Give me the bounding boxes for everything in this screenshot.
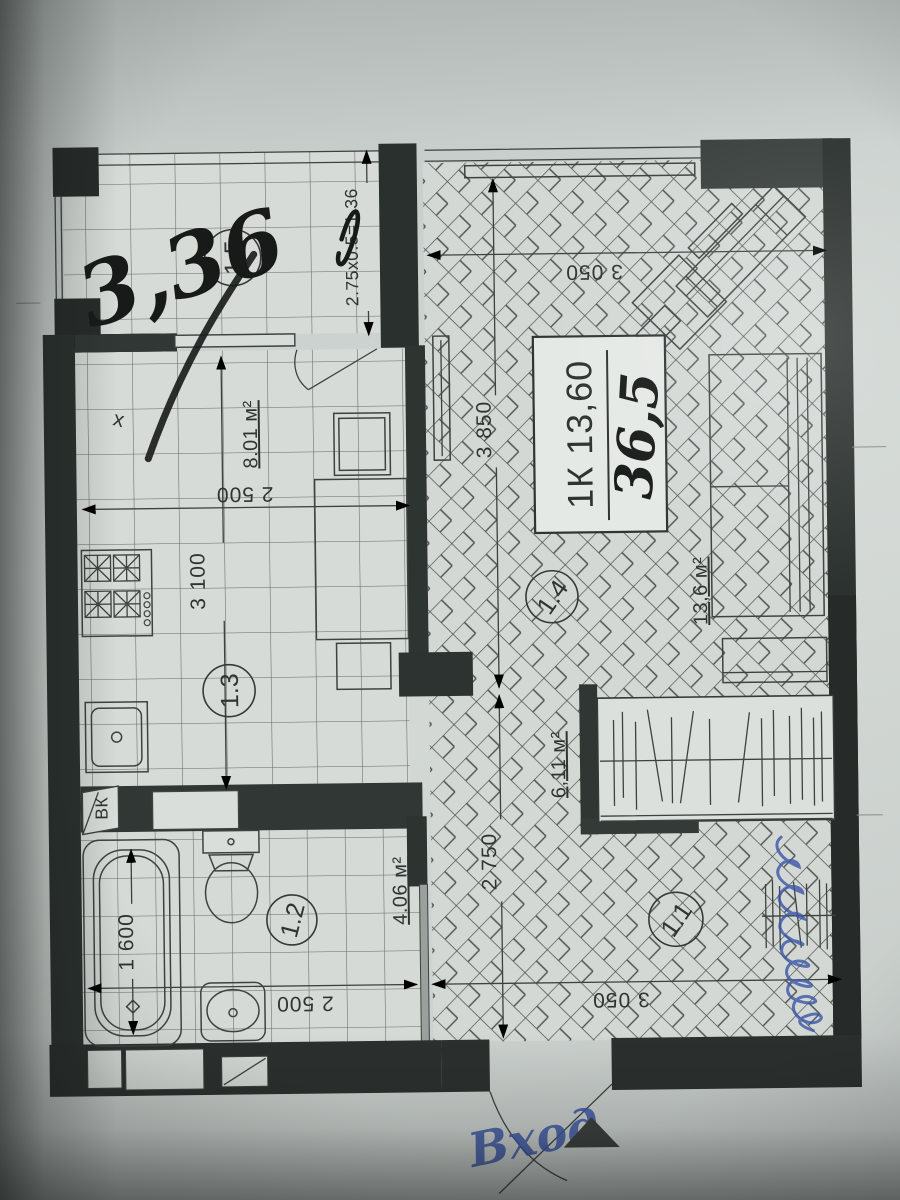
unit-label: 1К 13,60 <box>558 360 601 510</box>
dim-living-width: 3 050 <box>565 260 623 284</box>
wall-corner-tr <box>700 138 833 189</box>
area-living: 13,6 м² <box>689 557 712 626</box>
water-riser-box: ВК <box>82 786 119 834</box>
bottom-wall-niche-1 <box>87 1050 121 1088</box>
wall-pier-top <box>378 143 418 347</box>
balcony-side-window <box>55 197 62 301</box>
closet <box>597 695 834 822</box>
dim-kitchen-width: 2 500 <box>216 482 274 506</box>
bottom-wall-niche-2 <box>125 1049 203 1090</box>
unit-label-box: 1К 13,60 36,5 <box>533 335 674 533</box>
wall-closet-left <box>579 684 599 834</box>
wall-bath-kitchen <box>80 782 423 832</box>
floor-plan-photo: ВК 2.75x0.5=1.36 3 050 3 850 2 500 <box>0 0 900 1200</box>
water-riser-label: ВК <box>91 796 111 819</box>
dim-hall-width: 3 050 <box>592 988 650 1012</box>
wall-bottom-right <box>611 1035 862 1090</box>
dim-hall-depth: 2 750 <box>478 833 502 891</box>
wall-bath-hall-thin <box>419 884 429 1042</box>
area-bath: 4.06 м² <box>389 856 412 925</box>
dim-bath-width: 2 500 <box>276 991 334 1015</box>
floor-plan-svg: ВК 2.75x0.5=1.36 3 050 3 850 2 500 <box>0 0 900 1200</box>
wall-duct-inset <box>152 791 238 830</box>
dim-living-depth: 3 850 <box>473 401 497 459</box>
area-kitchen: 8.01 м² <box>240 400 263 469</box>
dim-kitchen-depth: 3 100 <box>186 552 210 610</box>
wall-corner-tl <box>52 147 99 197</box>
dim-tub-length: 1 600 <box>115 913 139 971</box>
area-hall: 6,11 м² <box>548 731 571 798</box>
living-hall-parquet <box>423 158 834 1042</box>
wall-kitchen-se-block <box>399 652 474 697</box>
room-number-kitchen: 1.3 <box>216 673 244 708</box>
handwritten-total-area: 36,5 <box>603 371 671 501</box>
wall-entry-pier <box>441 1040 490 1093</box>
kitchen-window-sill <box>175 334 295 347</box>
